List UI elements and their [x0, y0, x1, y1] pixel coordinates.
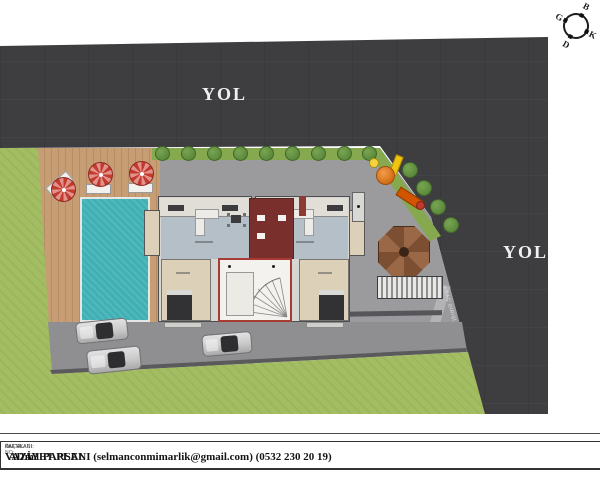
sofa [195, 209, 219, 219]
tree-icon [181, 146, 196, 161]
red-column [299, 196, 306, 216]
title-block: ADA 1 PARSEL PAFTA ADI: VAZİYET PLANI (s… [0, 441, 600, 470]
car-glass [221, 336, 239, 353]
tree-icon [416, 180, 432, 196]
north-compass-icon: B K D G [544, 0, 600, 58]
bedroom [299, 259, 349, 321]
car-glass [107, 350, 126, 368]
room-label [195, 241, 213, 243]
tree-icon [155, 146, 170, 161]
stoop [306, 322, 344, 328]
title-cell-pafta-no: PAFTA NO: [0, 442, 1, 468]
room-label [296, 241, 314, 243]
car [201, 331, 253, 357]
chair [243, 224, 246, 227]
tree-icon [402, 162, 418, 178]
car-hood [205, 339, 218, 351]
unit-dot [357, 205, 360, 208]
bed [319, 290, 344, 320]
shaft-window [257, 233, 265, 239]
site-plan-drawing: ARAÇ GİRİŞİ [0, 0, 600, 480]
bedroom [161, 259, 211, 321]
compass-letter-d: D [559, 38, 573, 52]
shaft-window [257, 215, 265, 221]
tree-icon [233, 146, 248, 161]
road-label-right: YOL [503, 242, 548, 263]
stoop [164, 322, 202, 328]
pillow [319, 290, 344, 295]
tree-icon [443, 217, 459, 233]
room-label [176, 272, 190, 274]
compass-letter-b: B [580, 0, 594, 13]
car-hood [91, 355, 106, 369]
umbrella-icon [129, 161, 154, 186]
chair [227, 224, 230, 227]
playground-dome [376, 166, 395, 185]
car-hood [80, 326, 94, 338]
umbrella-icon [51, 177, 76, 202]
umbrella-icon [88, 162, 113, 187]
chair [243, 213, 246, 216]
gazebo-hub [399, 247, 409, 257]
core-shaft [249, 198, 294, 259]
door-dot [228, 265, 231, 268]
curved-staircase [254, 264, 290, 320]
dining-table [231, 215, 241, 223]
living-room [161, 217, 250, 259]
bed [167, 290, 192, 320]
drawing-frame-line [0, 433, 600, 434]
room-label [318, 272, 332, 274]
terrace-lounger [168, 205, 184, 211]
chair [227, 213, 230, 216]
tree-icon [337, 146, 352, 161]
car-glass [95, 322, 113, 339]
hall-room [226, 272, 254, 316]
shaft-window [278, 215, 286, 221]
pafta-no-label: PAFTA NO: [5, 444, 22, 456]
swimming-pool [80, 197, 150, 322]
pergola [377, 276, 443, 299]
road-label-top: YOL [202, 84, 247, 105]
tree-icon [311, 146, 326, 161]
pillow [167, 290, 192, 295]
playground-cab [416, 201, 425, 210]
side-unit [352, 192, 365, 222]
tree-icon [207, 146, 222, 161]
tree-icon [430, 199, 446, 215]
terrace-lounger [222, 205, 238, 211]
terrace-lounger [327, 205, 343, 211]
villa-left-annex [144, 210, 160, 256]
tree-icon [259, 146, 274, 161]
playground-ball [369, 158, 379, 168]
tree-icon [285, 146, 300, 161]
entrance-stair-hall [218, 258, 292, 322]
